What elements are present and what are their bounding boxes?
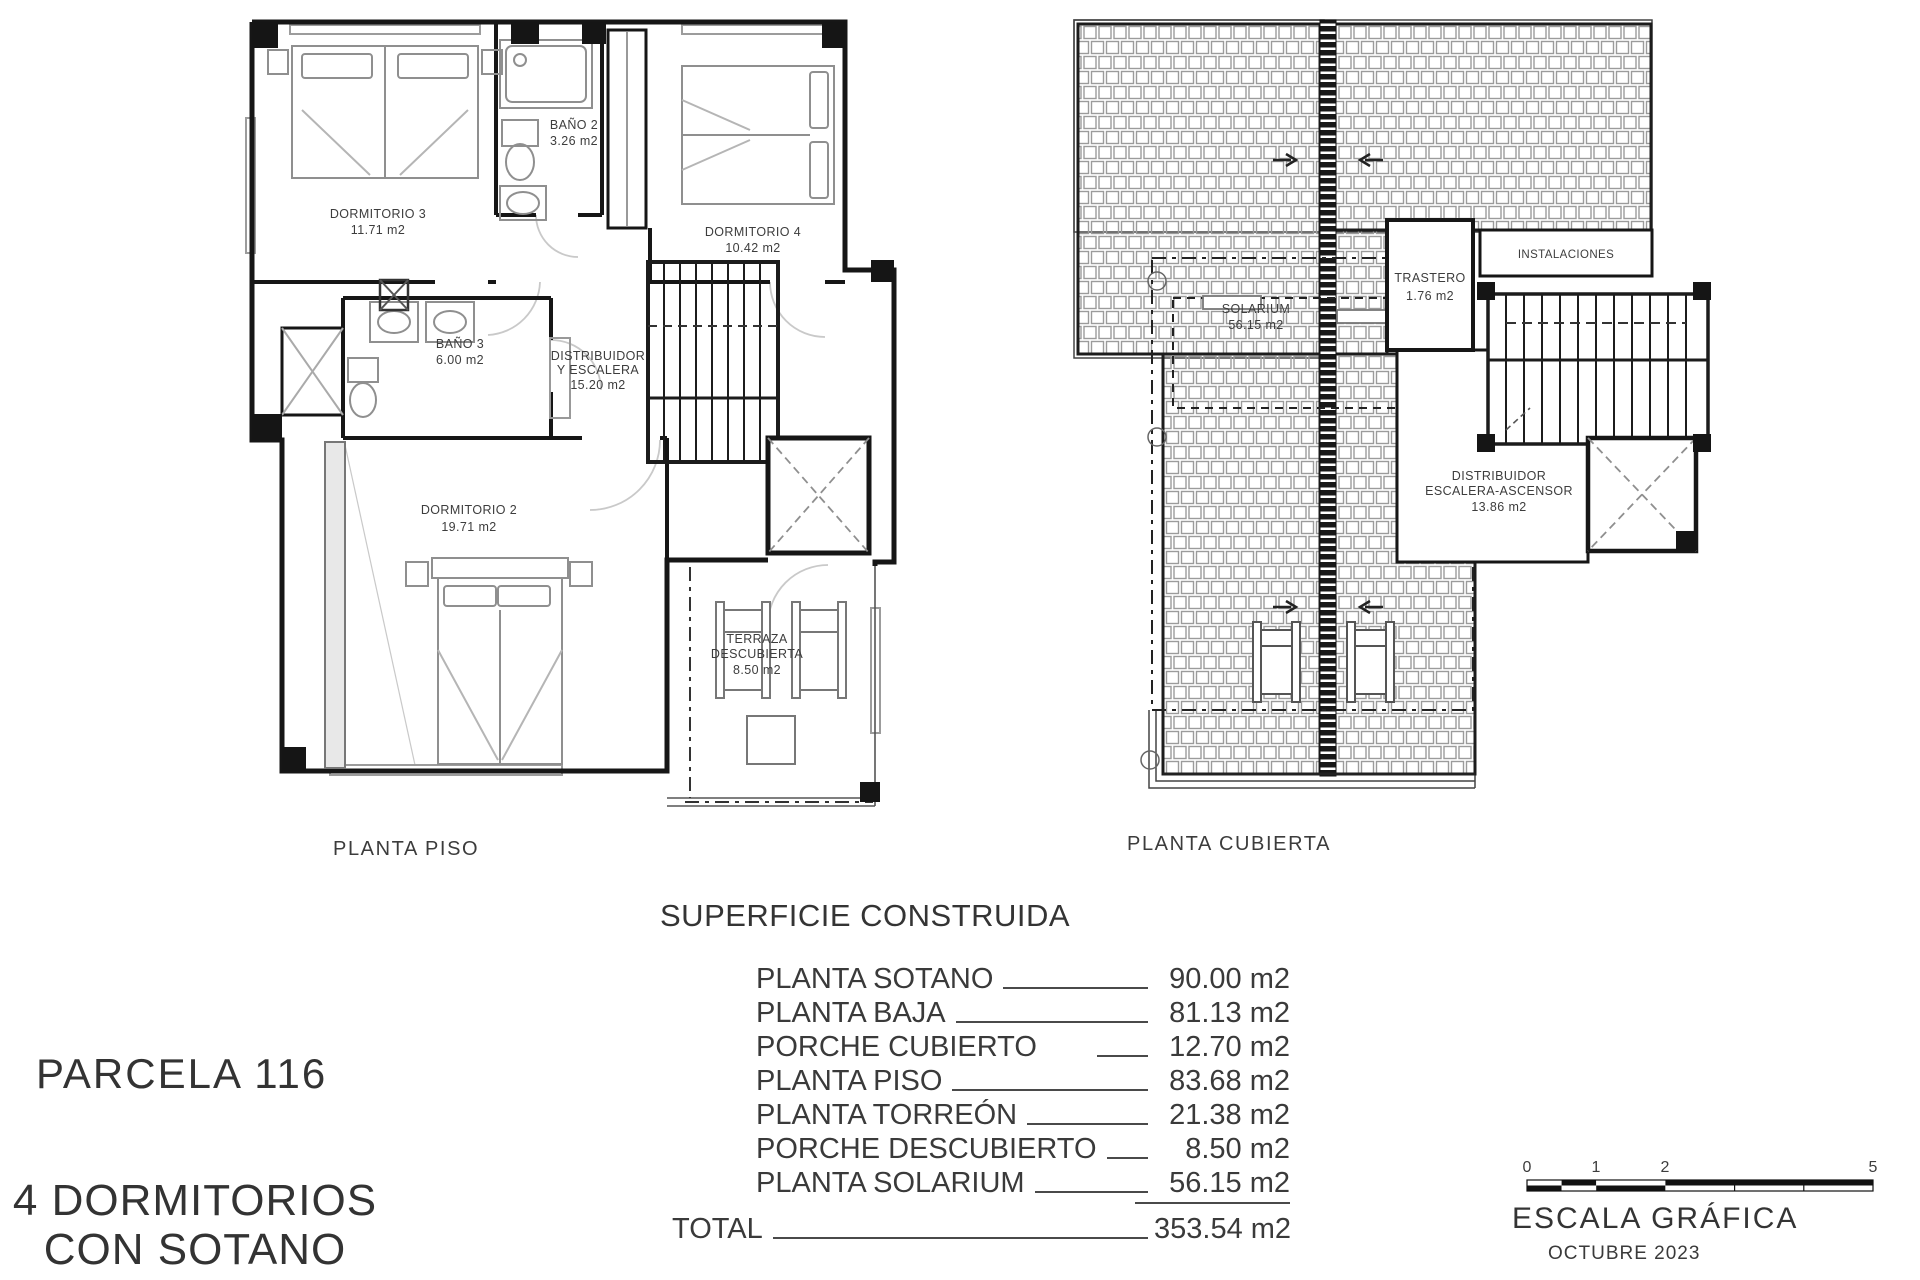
table-row: PLANTA BAJA 81.13 m2	[672, 996, 1290, 1030]
label-solarium-area: 56.15 m2	[1228, 318, 1283, 332]
leader-line	[1003, 987, 1148, 989]
wardrobe	[325, 442, 345, 768]
label-distribuidor: DISTRIBUIDOR	[551, 349, 645, 363]
row-value: 56.15 m2	[1154, 1167, 1290, 1200]
scale-tick-5: 5	[1869, 1159, 1878, 1176]
row-label: PLANTA SOTANO	[672, 963, 993, 996]
row-value: 21.38 m2	[1154, 1099, 1290, 1132]
label-bano2: BAÑO 2	[550, 118, 598, 132]
total-sum-line	[1135, 1202, 1290, 1204]
row-label: PORCHE DESCUBIERTO	[672, 1133, 1097, 1166]
bed-dormitorio2	[406, 558, 592, 764]
caption-planta-cubierta: PLANTA CUBIERTA	[1127, 833, 1331, 856]
bed-dormitorio4	[682, 66, 834, 204]
graphic-scale-bar: 0 1 2 5	[1515, 1156, 1895, 1206]
label-distribuidor-area: 15.20 m2	[570, 378, 625, 392]
table-row: PLANTA SOTANO 90.00 m2	[672, 962, 1290, 996]
parcel-title: PARCELA 116	[36, 1050, 327, 1098]
leader-line	[1097, 1055, 1148, 1057]
label-bano3: BAÑO 3	[436, 337, 484, 351]
label-distribuidor-2: ESCALERA-ASCENSOR	[1425, 484, 1573, 498]
label-distribuidor: DISTRIBUIDOR	[1452, 469, 1546, 483]
label-terraza: TERRAZA	[726, 632, 787, 646]
label-terraza-area: 8.50 m2	[733, 663, 781, 677]
scale-segments	[1527, 1180, 1873, 1191]
leader-line	[1035, 1191, 1148, 1193]
leader-line	[1027, 1123, 1148, 1125]
floor-plan-cubierta: SOLARIUM 56.15 m2 TRASTERO 1.76 m2 INSTA…	[1060, 10, 1740, 810]
leader-line	[1107, 1157, 1148, 1159]
elevator-shaft	[768, 438, 869, 553]
project-subtitle: 4 DORMITORIOS CON SOTANO	[0, 1176, 390, 1275]
label-dormitorio2-area: 19.71 m2	[441, 520, 496, 534]
label-solarium: SOLARIUM	[1222, 302, 1291, 316]
table-row: PORCHE DESCUBIERTO 8.50 m2	[672, 1132, 1290, 1166]
floor-plan-piso: DORMITORIO 3 11.71 m2 BAÑO 2 3.26 m2 DOR…	[230, 10, 910, 810]
bed-dormitorio3	[268, 46, 502, 178]
subtitle-line2: CON SOTANO	[0, 1225, 390, 1274]
label-bano2-area: 3.26 m2	[550, 134, 598, 148]
bathroom3-fixtures	[282, 280, 570, 418]
table-row: PLANTA SOLARIUM 56.15 m2	[672, 1166, 1290, 1200]
label-dormitorio4: DORMITORIO 4	[705, 225, 801, 239]
row-value: 8.50 m2	[1154, 1133, 1290, 1166]
total-row: TOTAL 353.54 m2	[672, 1212, 1290, 1246]
row-value: 12.70 m2	[1154, 1031, 1290, 1064]
staircase	[648, 262, 778, 462]
label-dormitorio4-area: 10.42 m2	[725, 241, 780, 255]
scale-title: ESCALA GRÁFICA	[1512, 1202, 1798, 1236]
label-distribuidor-2: Y ESCALERA	[557, 363, 640, 377]
staircase	[1488, 294, 1708, 444]
row-value: 81.13 m2	[1154, 997, 1290, 1030]
terraza	[667, 566, 875, 806]
row-label: PLANTA BAJA	[672, 997, 946, 1030]
trastero-room	[1387, 220, 1473, 350]
label-dormitorio3-area: 11.71 m2	[351, 223, 405, 237]
surface-table-title: SUPERFICIE CONSTRUIDA	[660, 898, 1070, 934]
total-label: TOTAL	[672, 1213, 763, 1246]
row-value: 83.68 m2	[1154, 1065, 1290, 1098]
leader-line	[956, 1021, 1148, 1023]
scale-tick-2: 2	[1661, 1159, 1670, 1176]
label-trastero-area: 1.76 m2	[1406, 289, 1454, 303]
label-bano3-area: 6.00 m2	[436, 353, 484, 367]
table-row: PLANTA PISO 83.68 m2	[672, 1064, 1290, 1098]
caption-planta-piso: PLANTA PISO	[333, 838, 479, 861]
table-row: PLANTA TORREÓN 21.38 m2	[672, 1098, 1290, 1132]
label-dormitorio3: DORMITORIO 3	[330, 207, 426, 221]
row-label: PLANTA TORREÓN	[672, 1099, 1017, 1132]
table-row: PORCHE CUBIERTO 12.70 m2	[672, 1030, 1290, 1064]
label-terraza-2: DESCUBIERTA	[711, 647, 803, 661]
scale-date: OCTUBRE 2023	[1548, 1243, 1700, 1265]
row-value: 90.00 m2	[1154, 963, 1290, 996]
label-distribuidor-area: 13.86 m2	[1471, 500, 1526, 514]
label-dormitorio2: DORMITORIO 2	[421, 503, 517, 517]
total-value: 353.54 m2	[1154, 1213, 1290, 1246]
label-trastero: TRASTERO	[1394, 271, 1465, 285]
surface-table: PLANTA SOTANO 90.00 m2 PLANTA BAJA 81.13…	[672, 962, 1290, 1200]
leader-line	[952, 1089, 1148, 1091]
row-label: PLANTA SOLARIUM	[672, 1167, 1025, 1200]
scale-tick-1: 1	[1592, 1159, 1601, 1176]
row-label: PORCHE CUBIERTO	[672, 1031, 1037, 1064]
label-instalaciones: INSTALACIONES	[1518, 249, 1614, 261]
row-label: PLANTA PISO	[672, 1065, 942, 1098]
party-wall	[1320, 20, 1336, 776]
scale-tick-0: 0	[1523, 1159, 1532, 1176]
leader-line	[773, 1237, 1148, 1239]
subtitle-line1: 4 DORMITORIOS	[0, 1176, 390, 1225]
